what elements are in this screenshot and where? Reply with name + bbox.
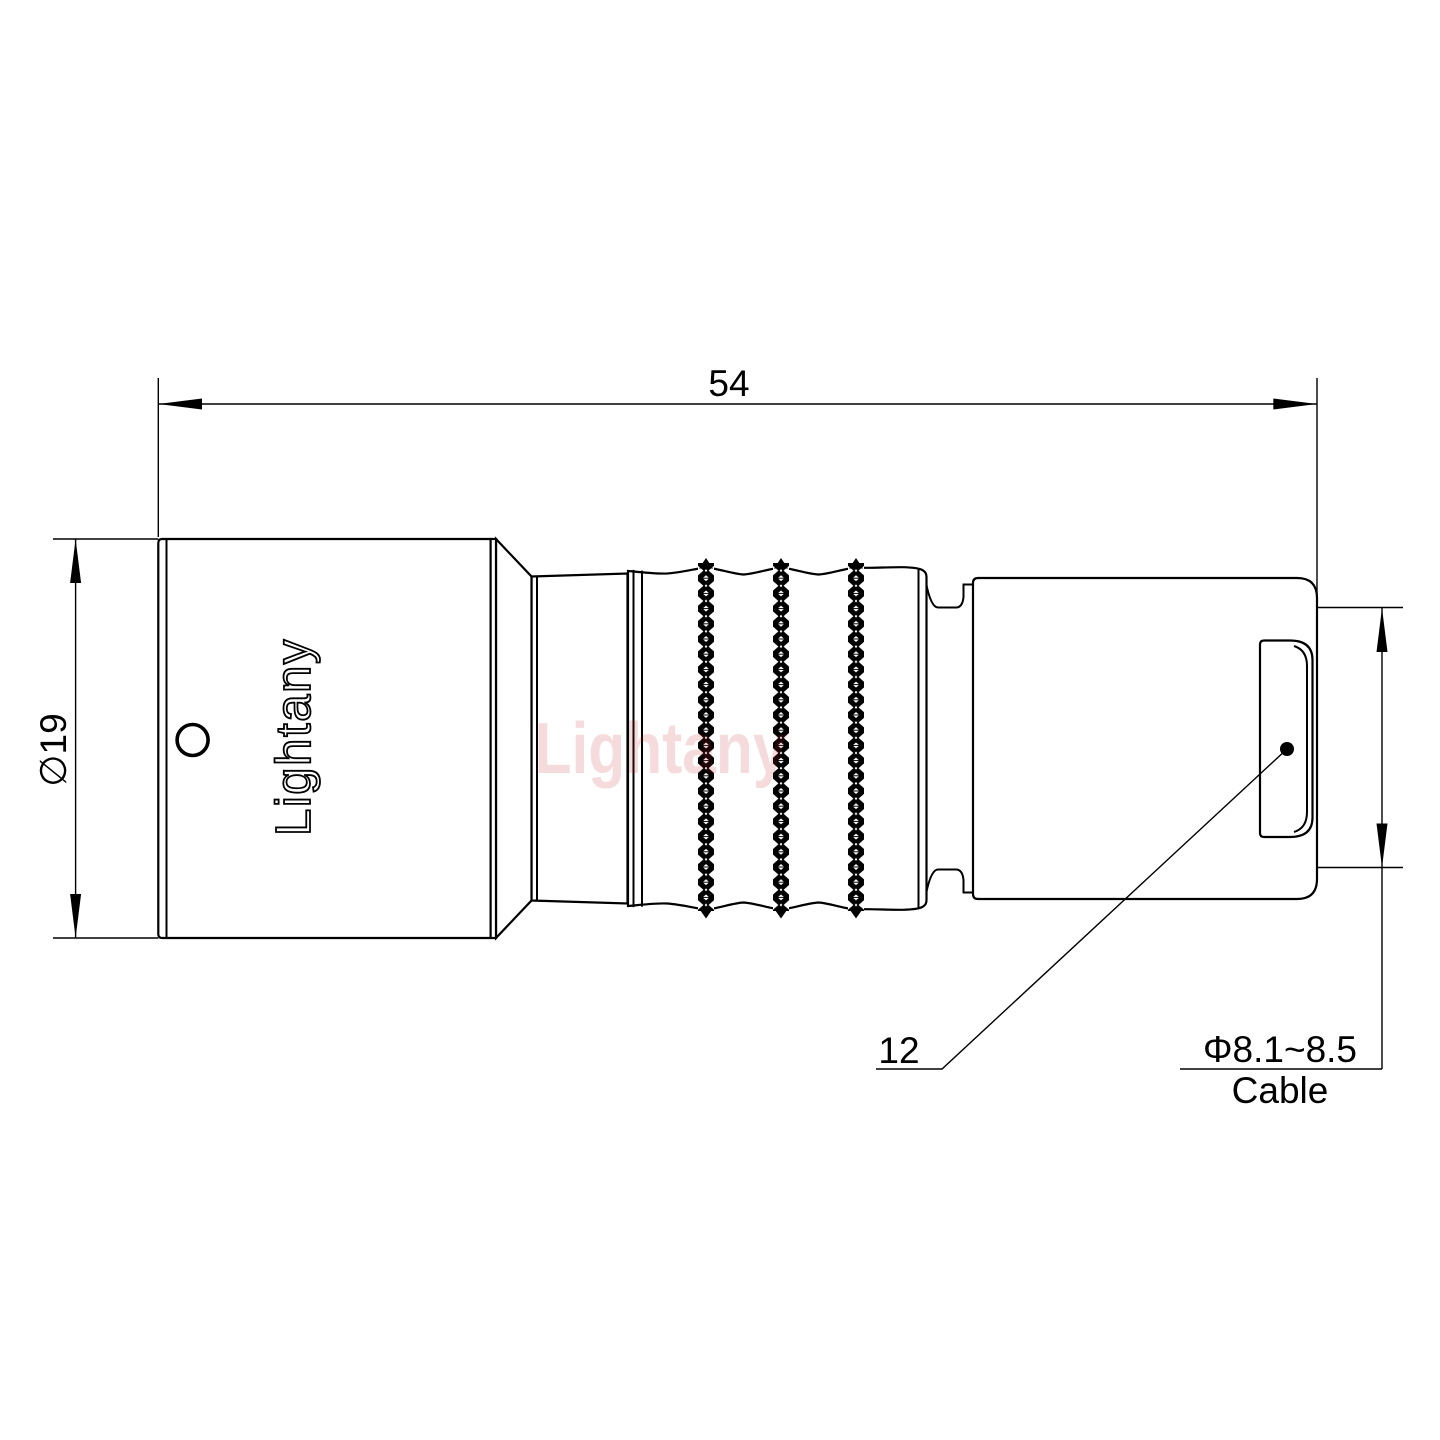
svg-text:∅19: ∅19 xyxy=(33,713,74,786)
svg-text:Φ8.1~8.5: Φ8.1~8.5 xyxy=(1203,1029,1357,1070)
svg-text:12: 12 xyxy=(878,1030,919,1071)
svg-text:Cable: Cable xyxy=(1232,1070,1329,1111)
svg-text:Lightany: Lightany xyxy=(267,638,321,836)
svg-text:Lightany: Lightany xyxy=(535,709,787,789)
svg-text:54: 54 xyxy=(708,363,749,404)
